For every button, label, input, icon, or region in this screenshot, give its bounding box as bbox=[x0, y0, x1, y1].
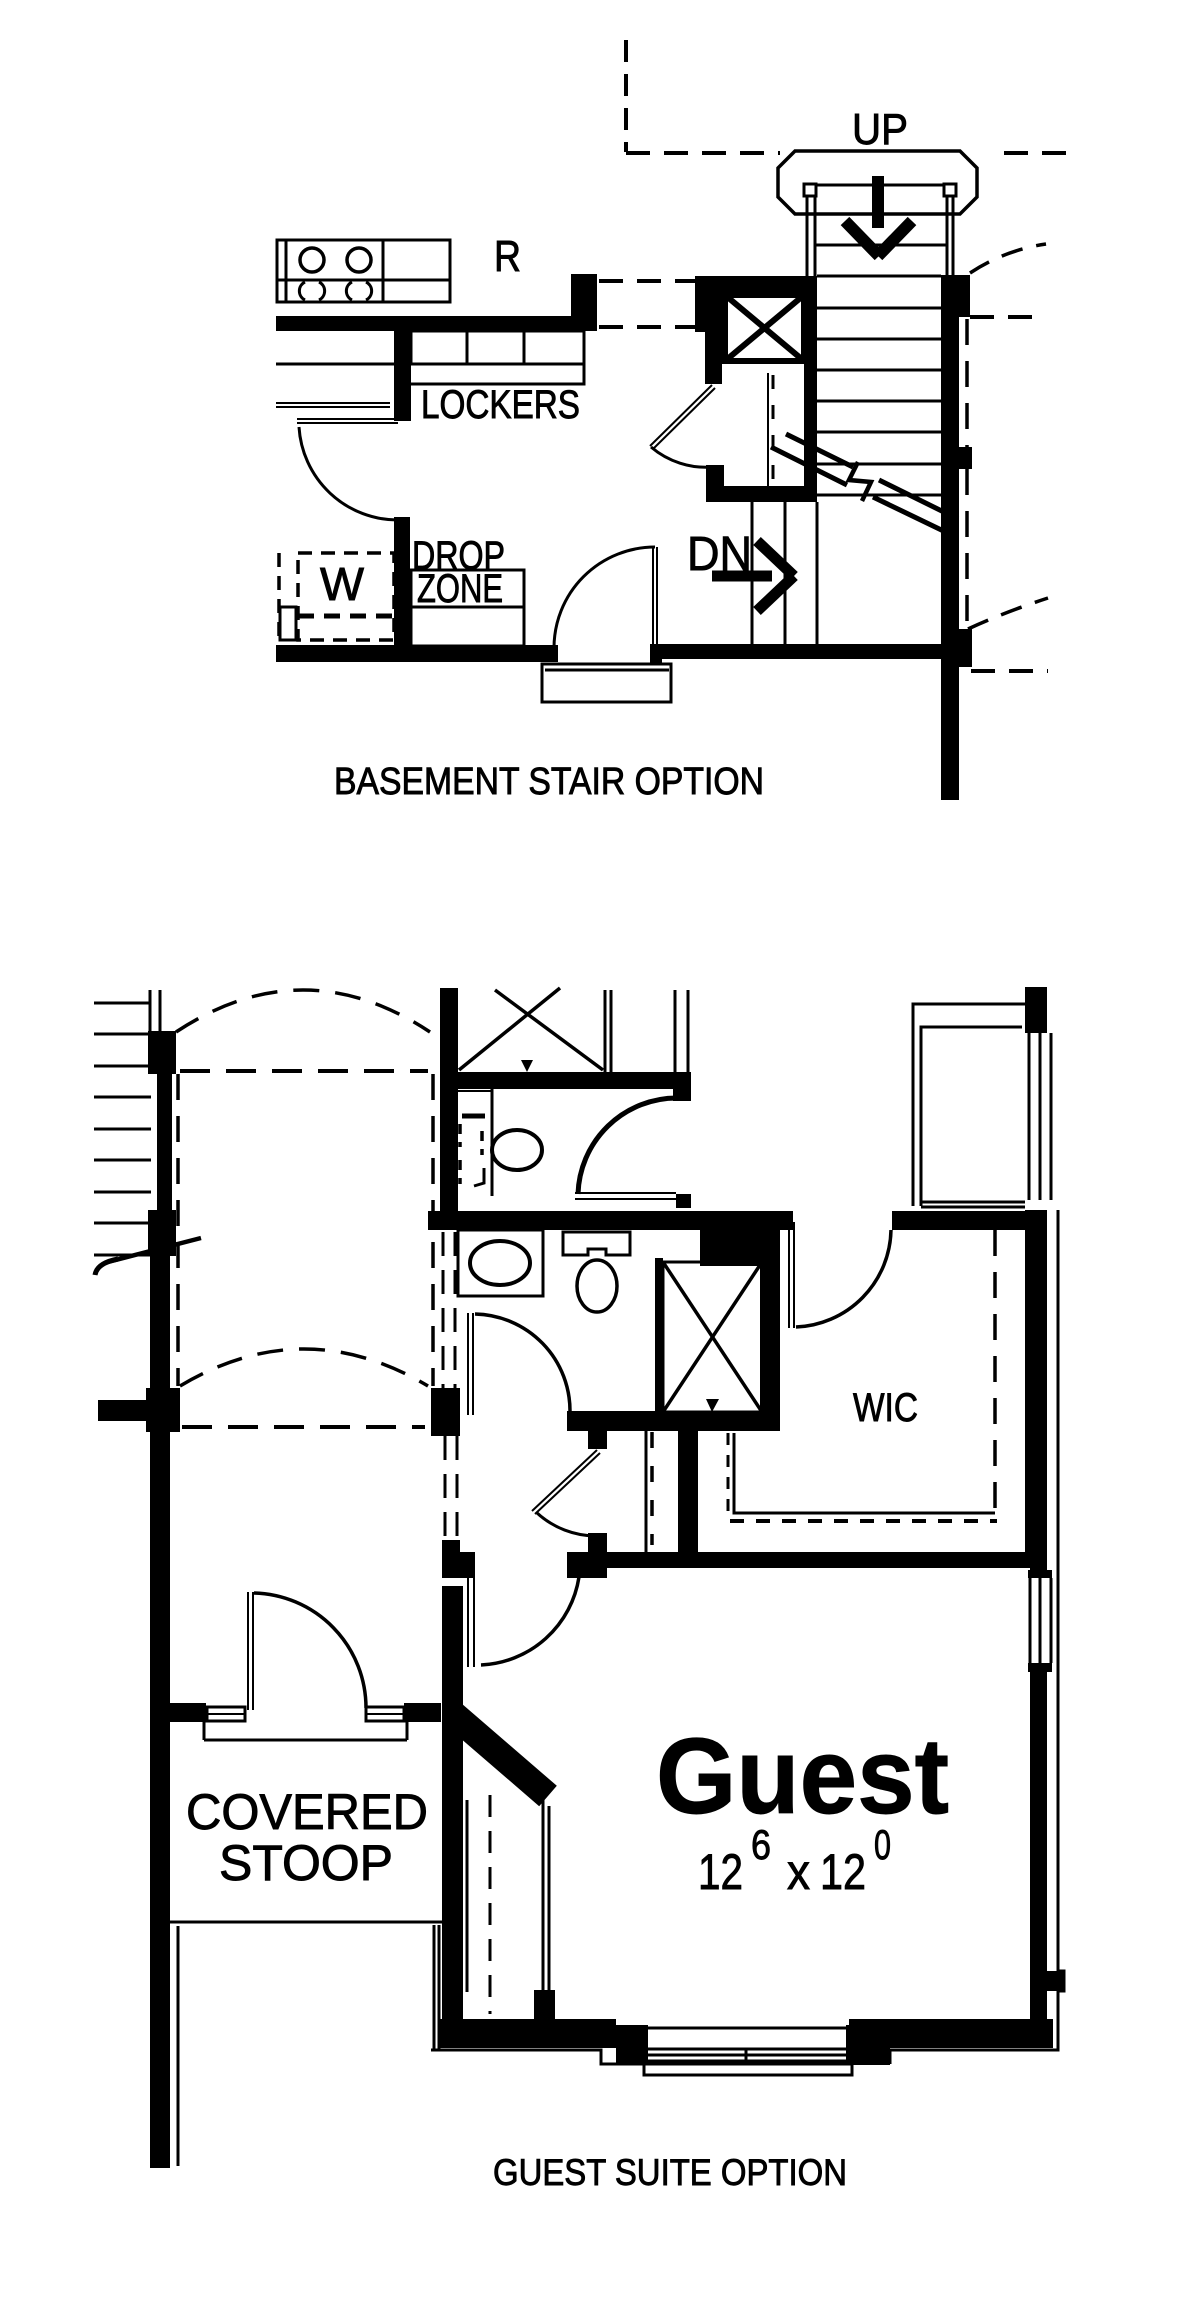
svg-text:12: 12 bbox=[820, 1844, 866, 1900]
svg-text:ZONE: ZONE bbox=[417, 567, 503, 611]
svg-text:W: W bbox=[320, 558, 365, 610]
svg-text:R: R bbox=[494, 232, 521, 281]
svg-text:6: 6 bbox=[751, 1821, 771, 1868]
svg-text:BASEMENT STAIR OPTION: BASEMENT STAIR OPTION bbox=[334, 761, 764, 803]
svg-text:STOOP: STOOP bbox=[219, 1835, 393, 1891]
svg-text:Guest: Guest bbox=[656, 1715, 949, 1836]
svg-text:12: 12 bbox=[698, 1844, 743, 1900]
svg-text:UP: UP bbox=[852, 105, 908, 154]
svg-text:COVERED: COVERED bbox=[186, 1784, 428, 1840]
svg-text:0: 0 bbox=[874, 1821, 891, 1868]
svg-text:GUEST SUITE OPTION: GUEST SUITE OPTION bbox=[493, 2152, 847, 2193]
svg-text:x: x bbox=[787, 1844, 810, 1900]
svg-text:WIC: WIC bbox=[853, 1386, 918, 1430]
svg-text:LOCKERS: LOCKERS bbox=[421, 383, 580, 427]
